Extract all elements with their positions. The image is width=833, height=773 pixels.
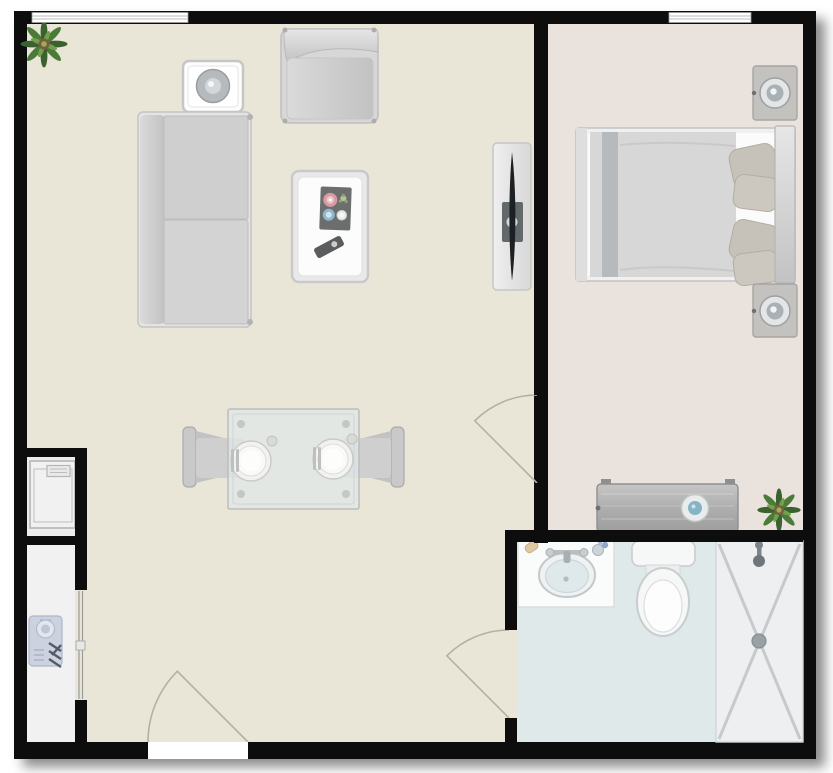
nightstand-top[interactable]: [752, 66, 797, 120]
side-table-lamp[interactable]: [183, 61, 243, 112]
window-living: [32, 13, 188, 23]
shower-drain-icon: [752, 634, 766, 648]
entry-door-gap: [148, 742, 248, 759]
dresser[interactable]: [596, 479, 738, 532]
corner-plant[interactable]: [21, 21, 68, 68]
tv-media-stand[interactable]: [493, 143, 531, 290]
wall-closet-right-lower: [75, 700, 87, 742]
bedside-lamp-icon: [760, 296, 790, 326]
washing-machine[interactable]: [30, 461, 75, 528]
serving-tray: [319, 186, 351, 230]
coffee-table[interactable]: [292, 171, 368, 282]
bedroom-plant[interactable]: [757, 488, 800, 531]
wall-bedroom-bathroom: [505, 530, 803, 542]
washer-control-panel: [47, 466, 70, 477]
dining-table[interactable]: [228, 409, 359, 509]
sofa[interactable]: [138, 112, 253, 327]
floor-plan-stage: [0, 0, 833, 773]
floor-plan: [0, 0, 833, 773]
vanity-sink[interactable]: [518, 540, 614, 607]
window-bedroom: [669, 13, 751, 23]
living-room-floor: [27, 24, 534, 742]
wall-bathroom-left-lower: [505, 718, 517, 742]
folded-clothes[interactable]: [29, 616, 62, 667]
bedside-lamp-icon: [760, 78, 790, 108]
wall-living-bedroom-upper: [534, 24, 548, 395]
shower[interactable]: [716, 541, 803, 742]
dresser-knob-icon: [682, 495, 709, 522]
table-lamp-icon: [197, 70, 230, 103]
headboard: [775, 126, 795, 283]
nightstand-bottom[interactable]: [752, 284, 797, 337]
armchair[interactable]: [281, 28, 378, 124]
wall-bathroom-left-upper: [505, 542, 517, 630]
wall-closet-right-upper: [75, 448, 87, 590]
sliding-door-handle: [76, 641, 85, 650]
double-bed[interactable]: [576, 126, 795, 287]
